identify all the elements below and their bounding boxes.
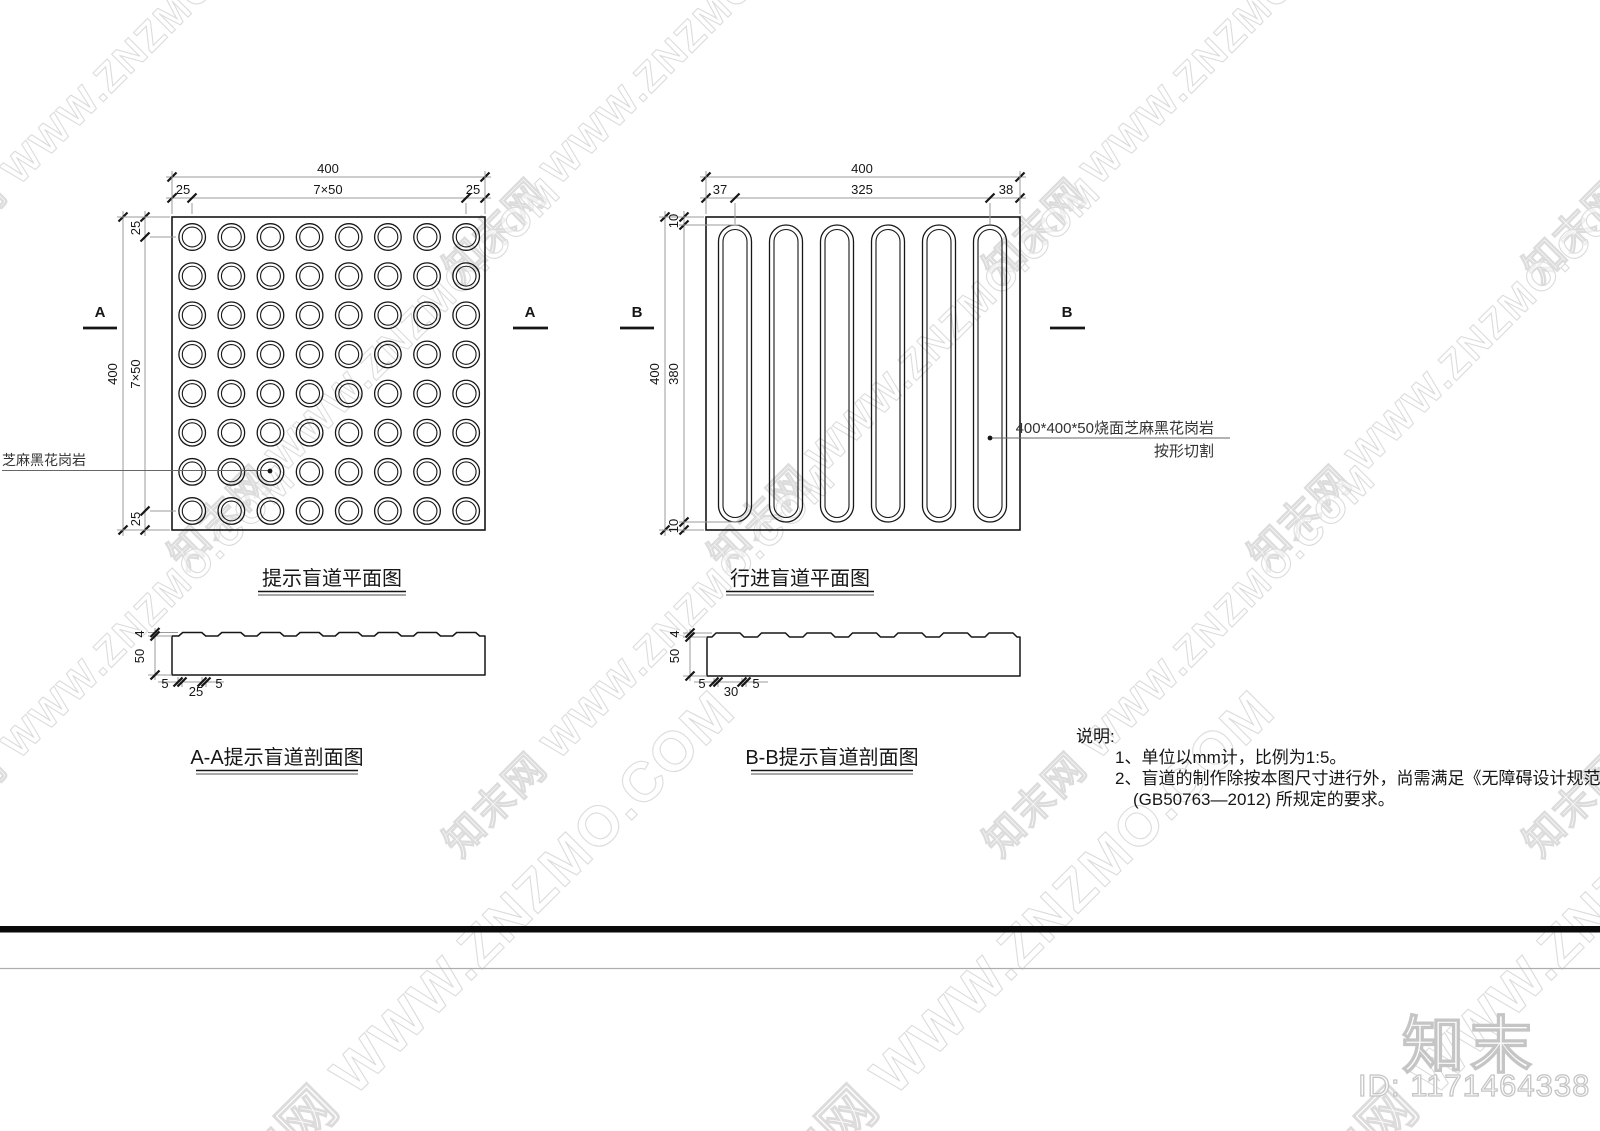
dot-outer: [414, 263, 441, 290]
dot-inner: [182, 501, 202, 521]
dot-inner: [221, 462, 241, 482]
dim-label: 400: [851, 161, 873, 176]
dot-inner: [339, 423, 359, 443]
dot-inner: [417, 345, 437, 365]
dot-outer: [218, 419, 245, 446]
dot-outer: [335, 263, 362, 290]
dot-outer: [218, 459, 245, 486]
dot-inner: [221, 423, 241, 443]
dot-inner: [456, 501, 476, 521]
dim-label: 50: [132, 649, 147, 663]
dim-label: 5: [161, 676, 168, 691]
dot-inner: [378, 345, 398, 365]
dot-outer: [179, 459, 206, 486]
dot-outer: [375, 380, 402, 407]
dim-label: 400: [105, 363, 120, 385]
notes-block: 说明: 1、单位以mm计，比例为1:5。 2、盲道的制作除按本图尺寸进行外，尚需…: [1076, 727, 1600, 809]
dot-outer: [296, 498, 323, 525]
dim-label: 37: [713, 182, 727, 197]
dot-inner: [221, 227, 241, 247]
notes-line: 1、单位以mm计，比例为1:5。: [1115, 748, 1346, 767]
section-profile-outline: [707, 633, 1020, 676]
dot-outer: [375, 419, 402, 446]
directional-tile-plan: 400 37 325 38 400 380 10 10 400*400*50烧面…: [620, 161, 1230, 595]
drawing-canvas: 400 25 7×50 25 400 25 7×50 25 芝麻黑花岗岩 A A…: [0, 0, 1600, 1131]
section-marker-a-left: A: [95, 304, 106, 321]
notes-line: 2、盲道的制作除按本图尺寸进行外，尚需满足《无障碍设计规范》: [1115, 769, 1600, 788]
section-aa-title: A-A提示盲道剖面图: [190, 746, 363, 769]
dot-inner: [339, 266, 359, 286]
dot-outer: [414, 224, 441, 251]
dot-outer: [453, 419, 480, 446]
dot-outer: [218, 302, 245, 329]
dot-outer: [218, 498, 245, 525]
dot-outer: [453, 380, 480, 407]
dim-label: 25: [466, 182, 480, 197]
dot-inner: [456, 227, 476, 247]
section-profile-outline: [172, 633, 485, 676]
dot-outer: [335, 419, 362, 446]
dim-label: 5: [215, 676, 222, 691]
bar-inner: [927, 230, 951, 518]
dim-label: 38: [999, 182, 1013, 197]
bar-inner: [723, 230, 747, 518]
dim-label: 10: [666, 214, 681, 228]
dot-inner: [261, 345, 281, 365]
dot-outer: [453, 459, 480, 486]
dot-inner: [182, 423, 202, 443]
dot-inner: [261, 501, 281, 521]
dot-inner: [182, 227, 202, 247]
left-plan-title: 提示盲道平面图: [262, 567, 402, 590]
dot-grid: [179, 224, 480, 525]
dot-outer: [414, 419, 441, 446]
sheet-border-bar: [0, 926, 1600, 933]
dot-inner: [417, 305, 437, 325]
dot-outer: [335, 224, 362, 251]
dot-inner: [417, 501, 437, 521]
dot-outer: [375, 224, 402, 251]
dot-inner: [378, 501, 398, 521]
dot-inner: [261, 384, 281, 404]
dot-inner: [456, 266, 476, 286]
leader-dot: [988, 436, 993, 441]
material-annotation: 按形切割: [1154, 443, 1214, 460]
dot-inner: [300, 423, 320, 443]
dot-inner: [378, 462, 398, 482]
dot-inner: [378, 227, 398, 247]
dot-outer: [335, 380, 362, 407]
dot-inner: [300, 305, 320, 325]
dot-inner: [417, 423, 437, 443]
section-aa: 4 50 5 25 5 A-A提示盲道剖面图: [132, 628, 485, 774]
dot-inner: [300, 462, 320, 482]
dot-inner: [339, 462, 359, 482]
dot-outer: [453, 302, 480, 329]
dot-inner: [417, 462, 437, 482]
dot-inner: [417, 384, 437, 404]
section-marker-b-right: B: [1062, 304, 1073, 321]
dot-inner: [339, 501, 359, 521]
dot-outer: [453, 498, 480, 525]
dot-inner: [221, 501, 241, 521]
dot-outer: [179, 224, 206, 251]
dot-inner: [378, 423, 398, 443]
dim-label: 325: [851, 182, 873, 197]
dot-outer: [257, 380, 284, 407]
dot-inner: [221, 305, 241, 325]
notes-line: (GB50763—2012) 所规定的要求。: [1133, 790, 1395, 809]
bar-inner: [876, 230, 900, 518]
dim-label: 30: [724, 684, 738, 699]
dot-inner: [339, 305, 359, 325]
dim-label: 7×50: [313, 182, 342, 197]
dot-outer: [375, 341, 402, 368]
dim-label: 10: [666, 519, 681, 533]
dot-inner: [456, 345, 476, 365]
dot-inner: [261, 227, 281, 247]
dot-outer: [257, 498, 284, 525]
dot-outer: [257, 224, 284, 251]
dim-label: 25: [176, 182, 190, 197]
dot-inner: [300, 227, 320, 247]
dim-label: 5: [698, 676, 705, 691]
dim-label: 400: [647, 363, 662, 385]
dot-inner: [378, 266, 398, 286]
dim-label: 7×50: [128, 359, 143, 388]
dot-outer: [296, 224, 323, 251]
notes-heading: 说明:: [1076, 727, 1115, 746]
dot-outer: [375, 459, 402, 486]
dim-label: 4: [667, 630, 682, 637]
section-bb-profile: [683, 629, 1020, 688]
dim-label: 5: [752, 676, 759, 691]
dot-outer: [453, 224, 480, 251]
dot-inner: [456, 462, 476, 482]
dot-inner: [182, 266, 202, 286]
dot-inner: [261, 305, 281, 325]
dot-inner: [221, 266, 241, 286]
section-marker-b-left: B: [632, 304, 643, 321]
right-plan-title: 行进盲道平面图: [730, 567, 870, 590]
dim-label: 50: [667, 649, 682, 663]
dot-inner: [221, 345, 241, 365]
dot-inner: [339, 345, 359, 365]
section-aa-profile: [148, 628, 485, 687]
dot-inner: [300, 345, 320, 365]
dot-outer: [335, 302, 362, 329]
dot-outer: [296, 302, 323, 329]
material-annotation: 400*400*50烧面芝麻黑花岗岩: [1016, 420, 1214, 437]
dot-outer: [257, 341, 284, 368]
dim-label: 25: [189, 684, 203, 699]
dot-outer: [179, 341, 206, 368]
dot-outer: [375, 263, 402, 290]
warning-tile-plan: 400 25 7×50 25 400 25 7×50 25 芝麻黑花岗岩 A A…: [2, 161, 548, 595]
dot-inner: [378, 305, 398, 325]
dot-outer: [375, 302, 402, 329]
bar-inner: [978, 230, 1002, 518]
dot-outer: [257, 302, 284, 329]
dot-inner: [300, 384, 320, 404]
dot-outer: [453, 341, 480, 368]
dot-outer: [335, 341, 362, 368]
dot-inner: [300, 501, 320, 521]
dot-outer: [179, 419, 206, 446]
dot-inner: [182, 305, 202, 325]
dot-inner: [261, 266, 281, 286]
dot-outer: [414, 498, 441, 525]
dot-inner: [456, 305, 476, 325]
dim-label: 400: [317, 161, 339, 176]
dot-outer: [257, 419, 284, 446]
dot-inner: [182, 384, 202, 404]
dot-outer: [296, 341, 323, 368]
dot-outer: [179, 498, 206, 525]
tile-outline: [172, 217, 485, 530]
asset-id: ID: 1171464338: [1358, 1068, 1590, 1104]
section-bb-title: B-B提示盲道剖面图: [745, 746, 918, 769]
dot-outer: [414, 459, 441, 486]
cad-sheet: 知末网 WWW.ZNZMO.COM知末网 WWW.ZNZMO.COM知末网 WW…: [0, 0, 1600, 1131]
dot-inner: [300, 266, 320, 286]
dot-outer: [218, 263, 245, 290]
bar-inner: [774, 230, 798, 518]
dot-inner: [456, 423, 476, 443]
dot-inner: [182, 345, 202, 365]
dot-outer: [218, 341, 245, 368]
dim-label: 380: [666, 363, 681, 385]
leader-dot: [268, 469, 273, 474]
dot-inner: [339, 227, 359, 247]
dot-inner: [182, 462, 202, 482]
dot-outer: [296, 380, 323, 407]
dot-inner: [417, 266, 437, 286]
dot-inner: [339, 384, 359, 404]
dot-outer: [375, 498, 402, 525]
material-annotation: 芝麻黑花岗岩: [2, 452, 86, 468]
dot-outer: [179, 302, 206, 329]
dot-outer: [179, 380, 206, 407]
dot-outer: [257, 263, 284, 290]
bar-grid: [719, 225, 1007, 522]
dot-inner: [261, 423, 281, 443]
bar-inner: [825, 230, 849, 518]
dot-outer: [296, 419, 323, 446]
dot-outer: [296, 263, 323, 290]
dim-label: 25: [128, 221, 143, 235]
dot-outer: [335, 498, 362, 525]
dot-outer: [414, 341, 441, 368]
section-marker-a-right: A: [525, 304, 536, 321]
dot-outer: [335, 459, 362, 486]
dot-inner: [456, 384, 476, 404]
dot-inner: [378, 384, 398, 404]
dim-label: 4: [132, 630, 147, 637]
dim-label: 25: [128, 512, 143, 526]
dot-outer: [414, 380, 441, 407]
dot-outer: [218, 224, 245, 251]
dot-outer: [453, 263, 480, 290]
dot-outer: [414, 302, 441, 329]
dot-outer: [179, 263, 206, 290]
section-bb: 4 50 5 30 5 B-B提示盲道剖面图: [667, 629, 1020, 775]
dot-outer: [296, 459, 323, 486]
dot-inner: [221, 384, 241, 404]
dot-inner: [417, 227, 437, 247]
dot-outer: [218, 380, 245, 407]
